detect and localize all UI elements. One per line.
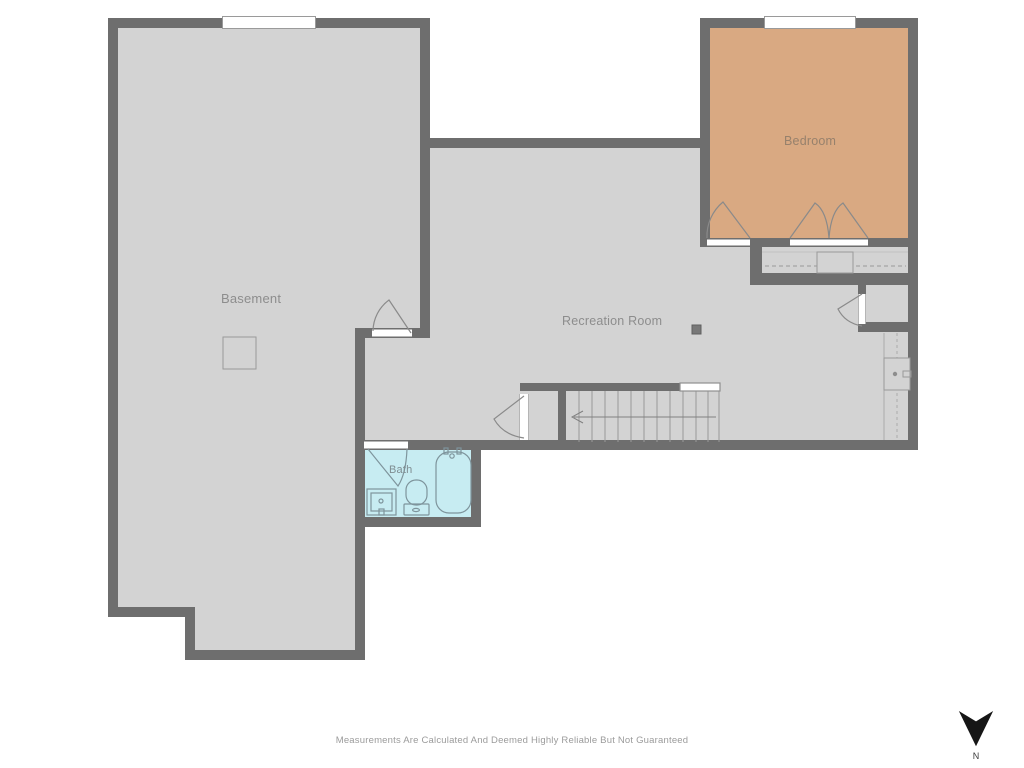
- recreation-room-label: Recreation Room: [562, 314, 662, 328]
- basement-label: Basement: [221, 291, 281, 306]
- window: [222, 16, 316, 29]
- door-opening: [372, 329, 412, 337]
- door-opening: [519, 394, 529, 440]
- wall: [420, 138, 710, 148]
- floor-plan: Basement Recreation Room Bedroom Bath Me…: [0, 0, 1024, 768]
- wall: [185, 650, 365, 660]
- wall: [420, 18, 430, 338]
- bedroom-floor: [710, 28, 908, 238]
- bedroom-label: Bedroom: [784, 134, 836, 148]
- compass: N: [952, 710, 1000, 761]
- wall: [858, 322, 918, 332]
- disclaimer-text: Measurements Are Calculated And Deemed H…: [0, 735, 1024, 746]
- wall: [355, 328, 365, 660]
- bath-floor: [365, 448, 471, 517]
- wall: [108, 607, 195, 617]
- recreation-room-floor: [365, 333, 430, 440]
- wall: [558, 383, 566, 442]
- basement-floor: [118, 333, 355, 617]
- wall: [471, 440, 481, 527]
- north-arrow-icon: [956, 710, 996, 750]
- wall: [355, 517, 481, 527]
- north-label: N: [973, 751, 980, 761]
- wall: [108, 18, 118, 617]
- basement-floor: [118, 28, 420, 333]
- bath-label: Bath: [389, 464, 412, 476]
- door-opening: [790, 239, 868, 246]
- wall: [908, 18, 918, 450]
- wall: [355, 440, 918, 450]
- wall: [520, 383, 680, 391]
- door-opening: [707, 239, 750, 246]
- window: [764, 16, 856, 29]
- wall: [700, 18, 710, 247]
- wall: [750, 273, 918, 285]
- door-opening: [858, 294, 866, 324]
- door-opening: [364, 441, 408, 449]
